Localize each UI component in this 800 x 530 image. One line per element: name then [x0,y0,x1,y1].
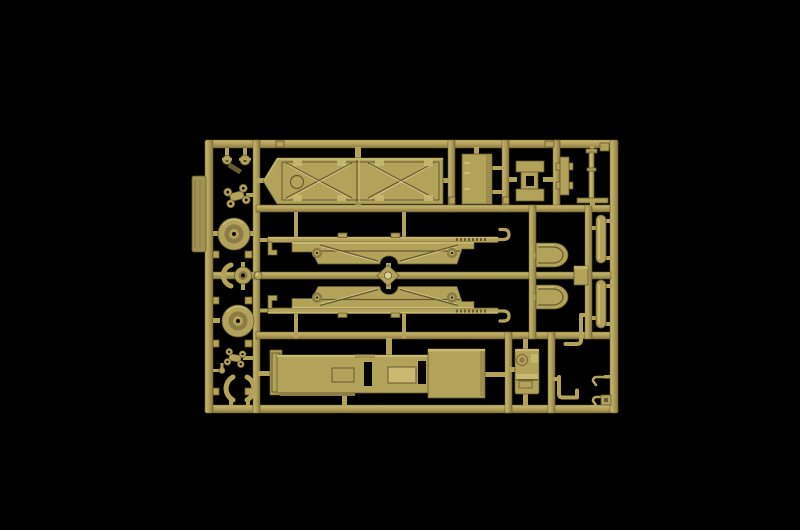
bed-slot-right [418,361,426,384]
divider-bottom-b [548,332,555,413]
runner-middle [213,272,611,279]
bed-floor [258,338,506,406]
corner-tab [601,395,611,405]
bent-rod-bottom [553,377,577,398]
chassis-rail-lower [260,287,509,339]
jack-rod [577,146,608,206]
molding-tab [192,176,206,252]
bed-recess [388,367,416,383]
bent-rod-right [566,313,588,344]
deck-platform [256,147,450,207]
equipment-box [462,147,502,204]
fender-upper [534,243,568,267]
cylinder-lower [592,280,612,328]
frame-rail-bottom [205,405,618,413]
divider-fender-column [529,205,536,339]
x-bracket-upper [223,183,254,208]
road-wheel-upper [213,218,254,250]
runner-lower [256,332,610,339]
blade-fitting [227,163,242,175]
sprue-photo: Tan / sand colored model kit sprue (part… [0,0,800,530]
runner-ball-left [254,272,262,280]
photo-canvas: Tan / sand colored model kit sprue (part… [0,0,800,530]
road-wheel-lower [213,305,254,337]
divider-bottom-a [505,332,512,413]
spool-fittings [222,148,251,174]
cross-fitting [509,161,553,201]
bed-slot-left [364,362,372,386]
divider-top-c [553,140,560,212]
junction-block [574,266,588,285]
stem-fitting [213,363,225,374]
runner-upper [256,205,610,212]
cylinder-upper [592,215,612,263]
ball-joint [384,272,391,279]
toolbox [510,339,539,405]
x-bracket-lower [223,348,253,368]
fender-lower [534,285,568,309]
chassis-rail-upper [260,212,509,264]
